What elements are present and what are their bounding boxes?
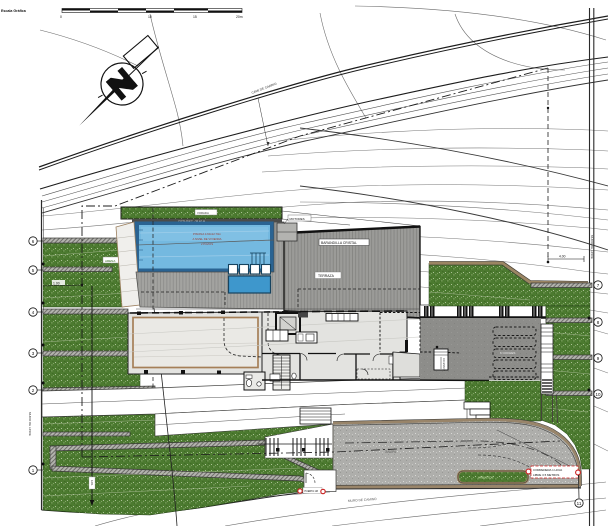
svg-text:MOTORES: MOTORES [290,217,305,221]
svg-text:VORADA: VORADA [197,211,209,215]
svg-text:12%: 12% [90,480,94,486]
svg-text:10: 10 [595,392,601,397]
svg-text:15: 15 [193,15,197,19]
svg-text:MURO DE LINDE: MURO DE LINDE [590,235,594,259]
svg-text:11: 11 [577,501,582,506]
svg-text:RAMPA: RAMPA [385,450,397,454]
svg-text:ASCENSOR: ASCENSOR [442,358,445,371]
svg-text:2 POZOS: 2 POZOS [201,242,213,246]
svg-text:BARANDILLA CRISTAL: BARANDILLA CRISTAL [321,241,357,245]
svg-text:TERRAZA: TERRAZA [318,274,335,278]
svg-text:4.00: 4.00 [559,255,566,259]
svg-text:20m: 20m [236,15,243,19]
svg-text:A NIVEL DE VIVIENDA: A NIVEL DE VIVIENDA [193,237,222,241]
svg-text:CORREDERA 1 HOJA: CORREDERA 1 HOJA [533,468,562,472]
svg-text:Escala Gráfica: Escala Gráfica [1,9,27,13]
svg-text:0: 0 [60,15,62,19]
svg-text:ARBUSTOS: ARBUSTOS [478,476,493,480]
svg-text:PUERTA 1M: PUERTA 1M [305,490,318,493]
svg-text:1.00: 1.00 [53,282,60,286]
svg-text:6 COCHES: 6 COCHES [500,351,515,355]
svg-text:MURO DE LINDE: MURO DE LINDE [28,412,32,436]
svg-text:10: 10 [148,15,152,19]
svg-text:ARENA: ARENA [105,259,115,263]
svg-text:PISCINA 4.60x12.70m: PISCINA 4.60x12.70m [193,232,222,236]
svg-text:LIBRE 3.5 METROS: LIBRE 3.5 METROS [533,473,559,477]
